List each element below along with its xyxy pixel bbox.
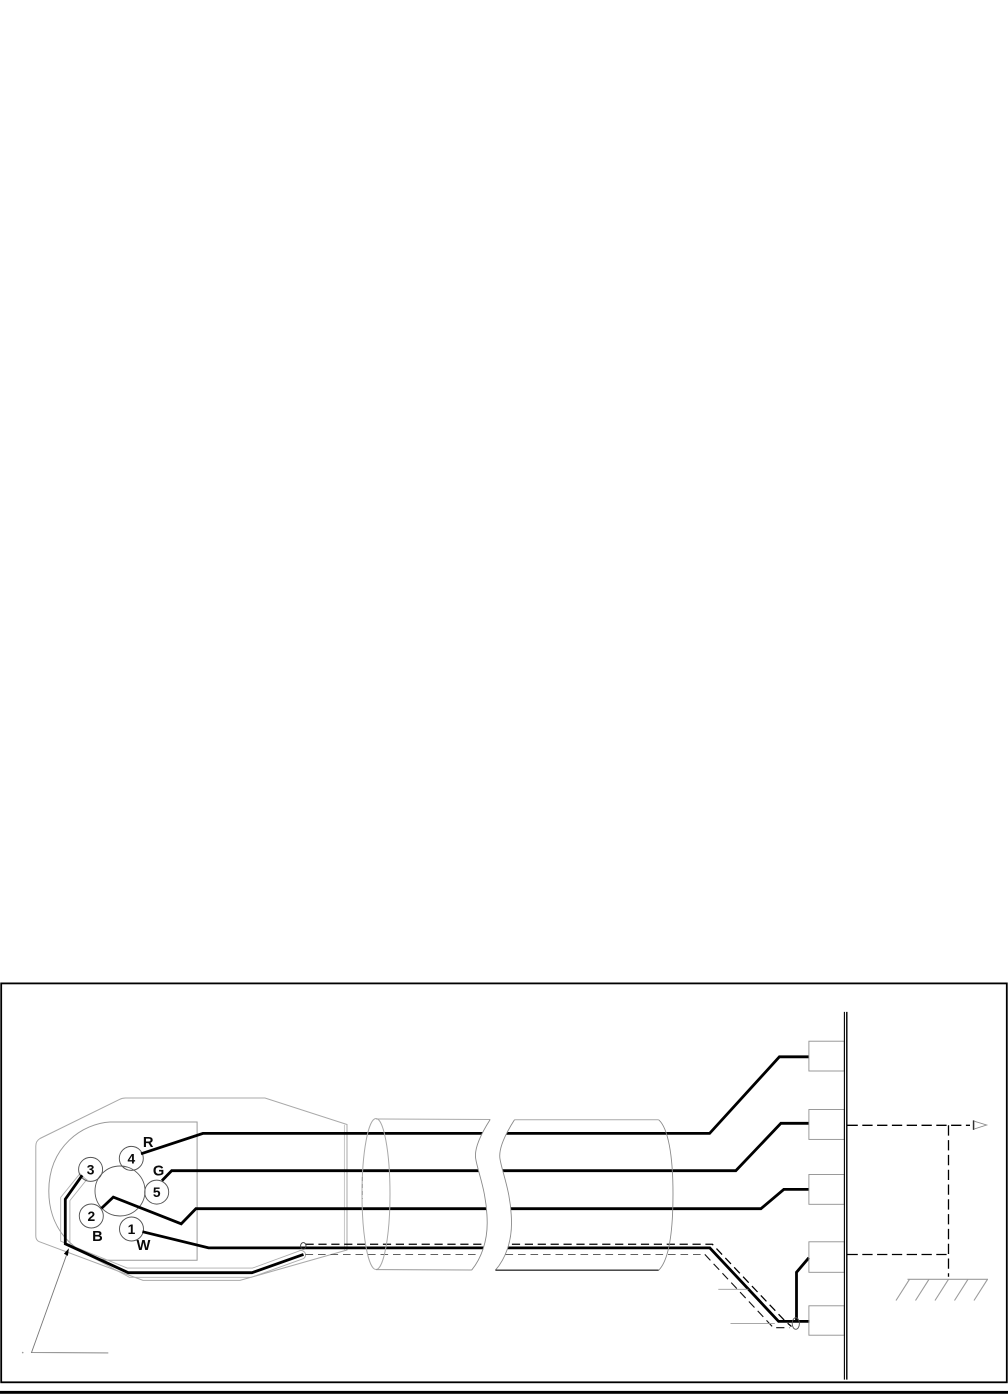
svg-text:5: 5 [153, 1185, 161, 1200]
svg-text:W: W [136, 1238, 150, 1254]
svg-text:B: B [92, 1229, 103, 1245]
svg-text:1: 1 [128, 1222, 136, 1237]
svg-text:3: 3 [87, 1162, 95, 1177]
svg-text:G: G [153, 1164, 164, 1180]
svg-text:R: R [143, 1135, 154, 1151]
svg-text:4: 4 [127, 1152, 135, 1167]
svg-text:2: 2 [87, 1209, 95, 1224]
